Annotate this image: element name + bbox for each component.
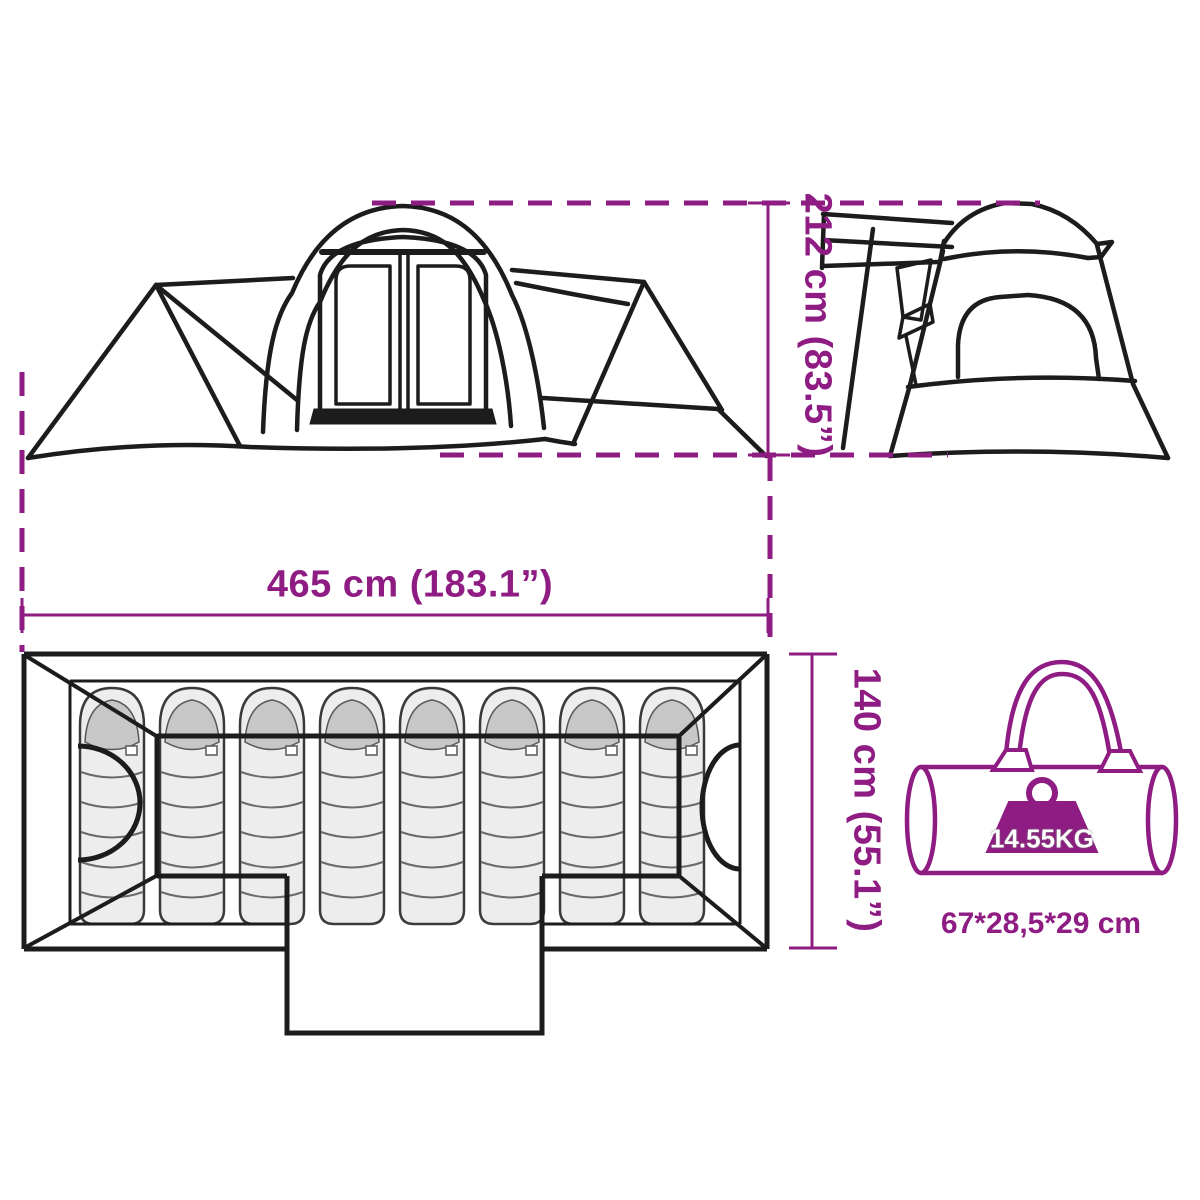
- sleeping-bag: [160, 688, 224, 924]
- tent-side-view: [822, 203, 1168, 458]
- door-sill: [310, 409, 496, 424]
- bag-size-label: 67*28,5*29 cm: [941, 907, 1141, 941]
- bag-weight-label: 14.55KG: [990, 824, 1094, 855]
- awning-pole: [843, 229, 873, 448]
- diagram-svg: [0, 0, 1200, 1200]
- depth-dimension-label: 140 cm (55.1”): [845, 668, 888, 933]
- sleeping-bag: [480, 688, 544, 924]
- side-door-arc: [958, 295, 1099, 379]
- tent-floor-plan: [24, 654, 767, 1033]
- tent-front-view: [28, 206, 766, 458]
- sleeping-bag: [240, 688, 304, 924]
- height-dimension-label: 212 cm (83.5”): [796, 193, 839, 458]
- product-diagram: 212 cm (83.5”) 465 cm (183.1”) 140 cm (5…: [0, 0, 1200, 1200]
- sleeping-bag: [560, 688, 624, 924]
- width-dimension-label: 465 cm (183.1”): [267, 564, 553, 607]
- door-arc-right: [702, 745, 740, 869]
- sleeping-bags: [80, 688, 704, 924]
- sleeping-bag: [320, 688, 384, 924]
- sleeping-bag: [400, 688, 464, 924]
